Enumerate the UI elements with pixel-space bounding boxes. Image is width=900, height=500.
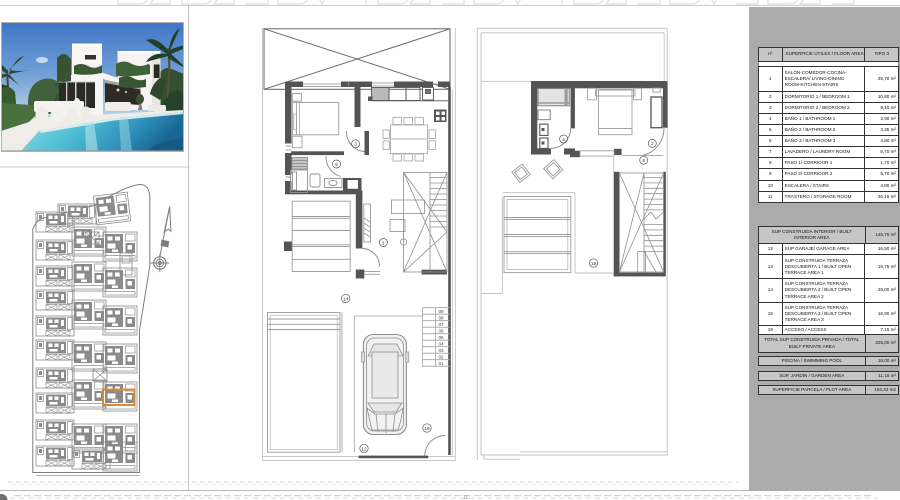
svg-text:08: 08 <box>438 316 444 321</box>
svg-text:04: 04 <box>438 342 444 347</box>
svg-text:09: 09 <box>438 309 444 314</box>
svg-text:07: 07 <box>438 322 444 327</box>
svg-text:16: 16 <box>424 426 430 432</box>
svg-text:03: 03 <box>438 348 444 353</box>
svg-text:05: 05 <box>438 335 444 340</box>
svg-text:02: 02 <box>438 355 444 360</box>
svg-text:4: 4 <box>562 137 565 143</box>
svg-text:15: 15 <box>591 261 597 267</box>
svg-text:11: 11 <box>463 495 468 500</box>
svg-text:3: 3 <box>354 142 357 148</box>
svg-text:1: 1 <box>382 240 385 246</box>
svg-text:2: 2 <box>651 141 654 147</box>
svg-text:8: 8 <box>642 158 645 164</box>
svg-text:14: 14 <box>343 296 349 302</box>
svg-text:01: 01 <box>438 361 444 366</box>
svg-text:5: 5 <box>335 162 338 168</box>
svg-text:06: 06 <box>438 329 444 334</box>
svg-text:12: 12 <box>361 446 367 452</box>
